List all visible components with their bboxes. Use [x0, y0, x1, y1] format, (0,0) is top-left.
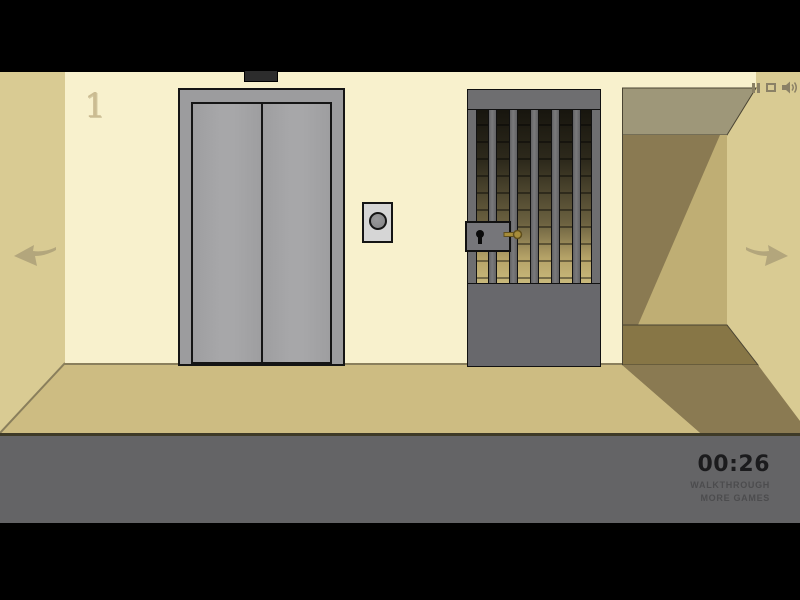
keyhole-stem — [478, 235, 482, 244]
left-arrow-icon — [10, 238, 58, 270]
timer: 00:26 — [690, 452, 770, 477]
elevator-call-button[interactable] — [369, 212, 387, 230]
gate-key[interactable] — [503, 228, 523, 241]
floor-number: 1 — [84, 86, 106, 126]
gate-bar — [509, 109, 518, 284]
walkthrough-link[interactable]: WALKTHROUGH — [690, 480, 770, 490]
game-stage: 1 — [0, 0, 800, 600]
quality-icon[interactable] — [766, 83, 776, 92]
pause-icon[interactable] — [752, 83, 760, 93]
elevator-call-panel — [362, 202, 393, 243]
prison-gate[interactable] — [467, 89, 601, 367]
elevator-indicator — [244, 70, 278, 82]
elevator-doors[interactable] — [191, 102, 332, 364]
bottom-hud-bar: 00:26 WALKTHROUGH MORE GAMES — [0, 433, 800, 523]
gate-bar — [551, 109, 560, 284]
nav-arrow-right[interactable] — [744, 238, 792, 275]
elevator-door-right[interactable] — [262, 102, 333, 364]
gate-bar — [572, 109, 581, 284]
gate-bar — [488, 109, 497, 284]
hud-icons — [752, 81, 798, 94]
more-games-link[interactable]: MORE GAMES — [690, 493, 770, 503]
elevator-frame — [178, 88, 345, 366]
gate-bottom-panel — [467, 283, 601, 367]
gate-top-rail — [467, 89, 601, 110]
gate-bar — [530, 109, 539, 284]
sound-icon[interactable] — [782, 81, 798, 94]
wall-top-strip — [622, 72, 756, 88]
nav-arrow-left[interactable] — [10, 238, 58, 275]
right-arrow-icon — [744, 238, 792, 270]
elevator-door-left[interactable] — [191, 102, 262, 364]
